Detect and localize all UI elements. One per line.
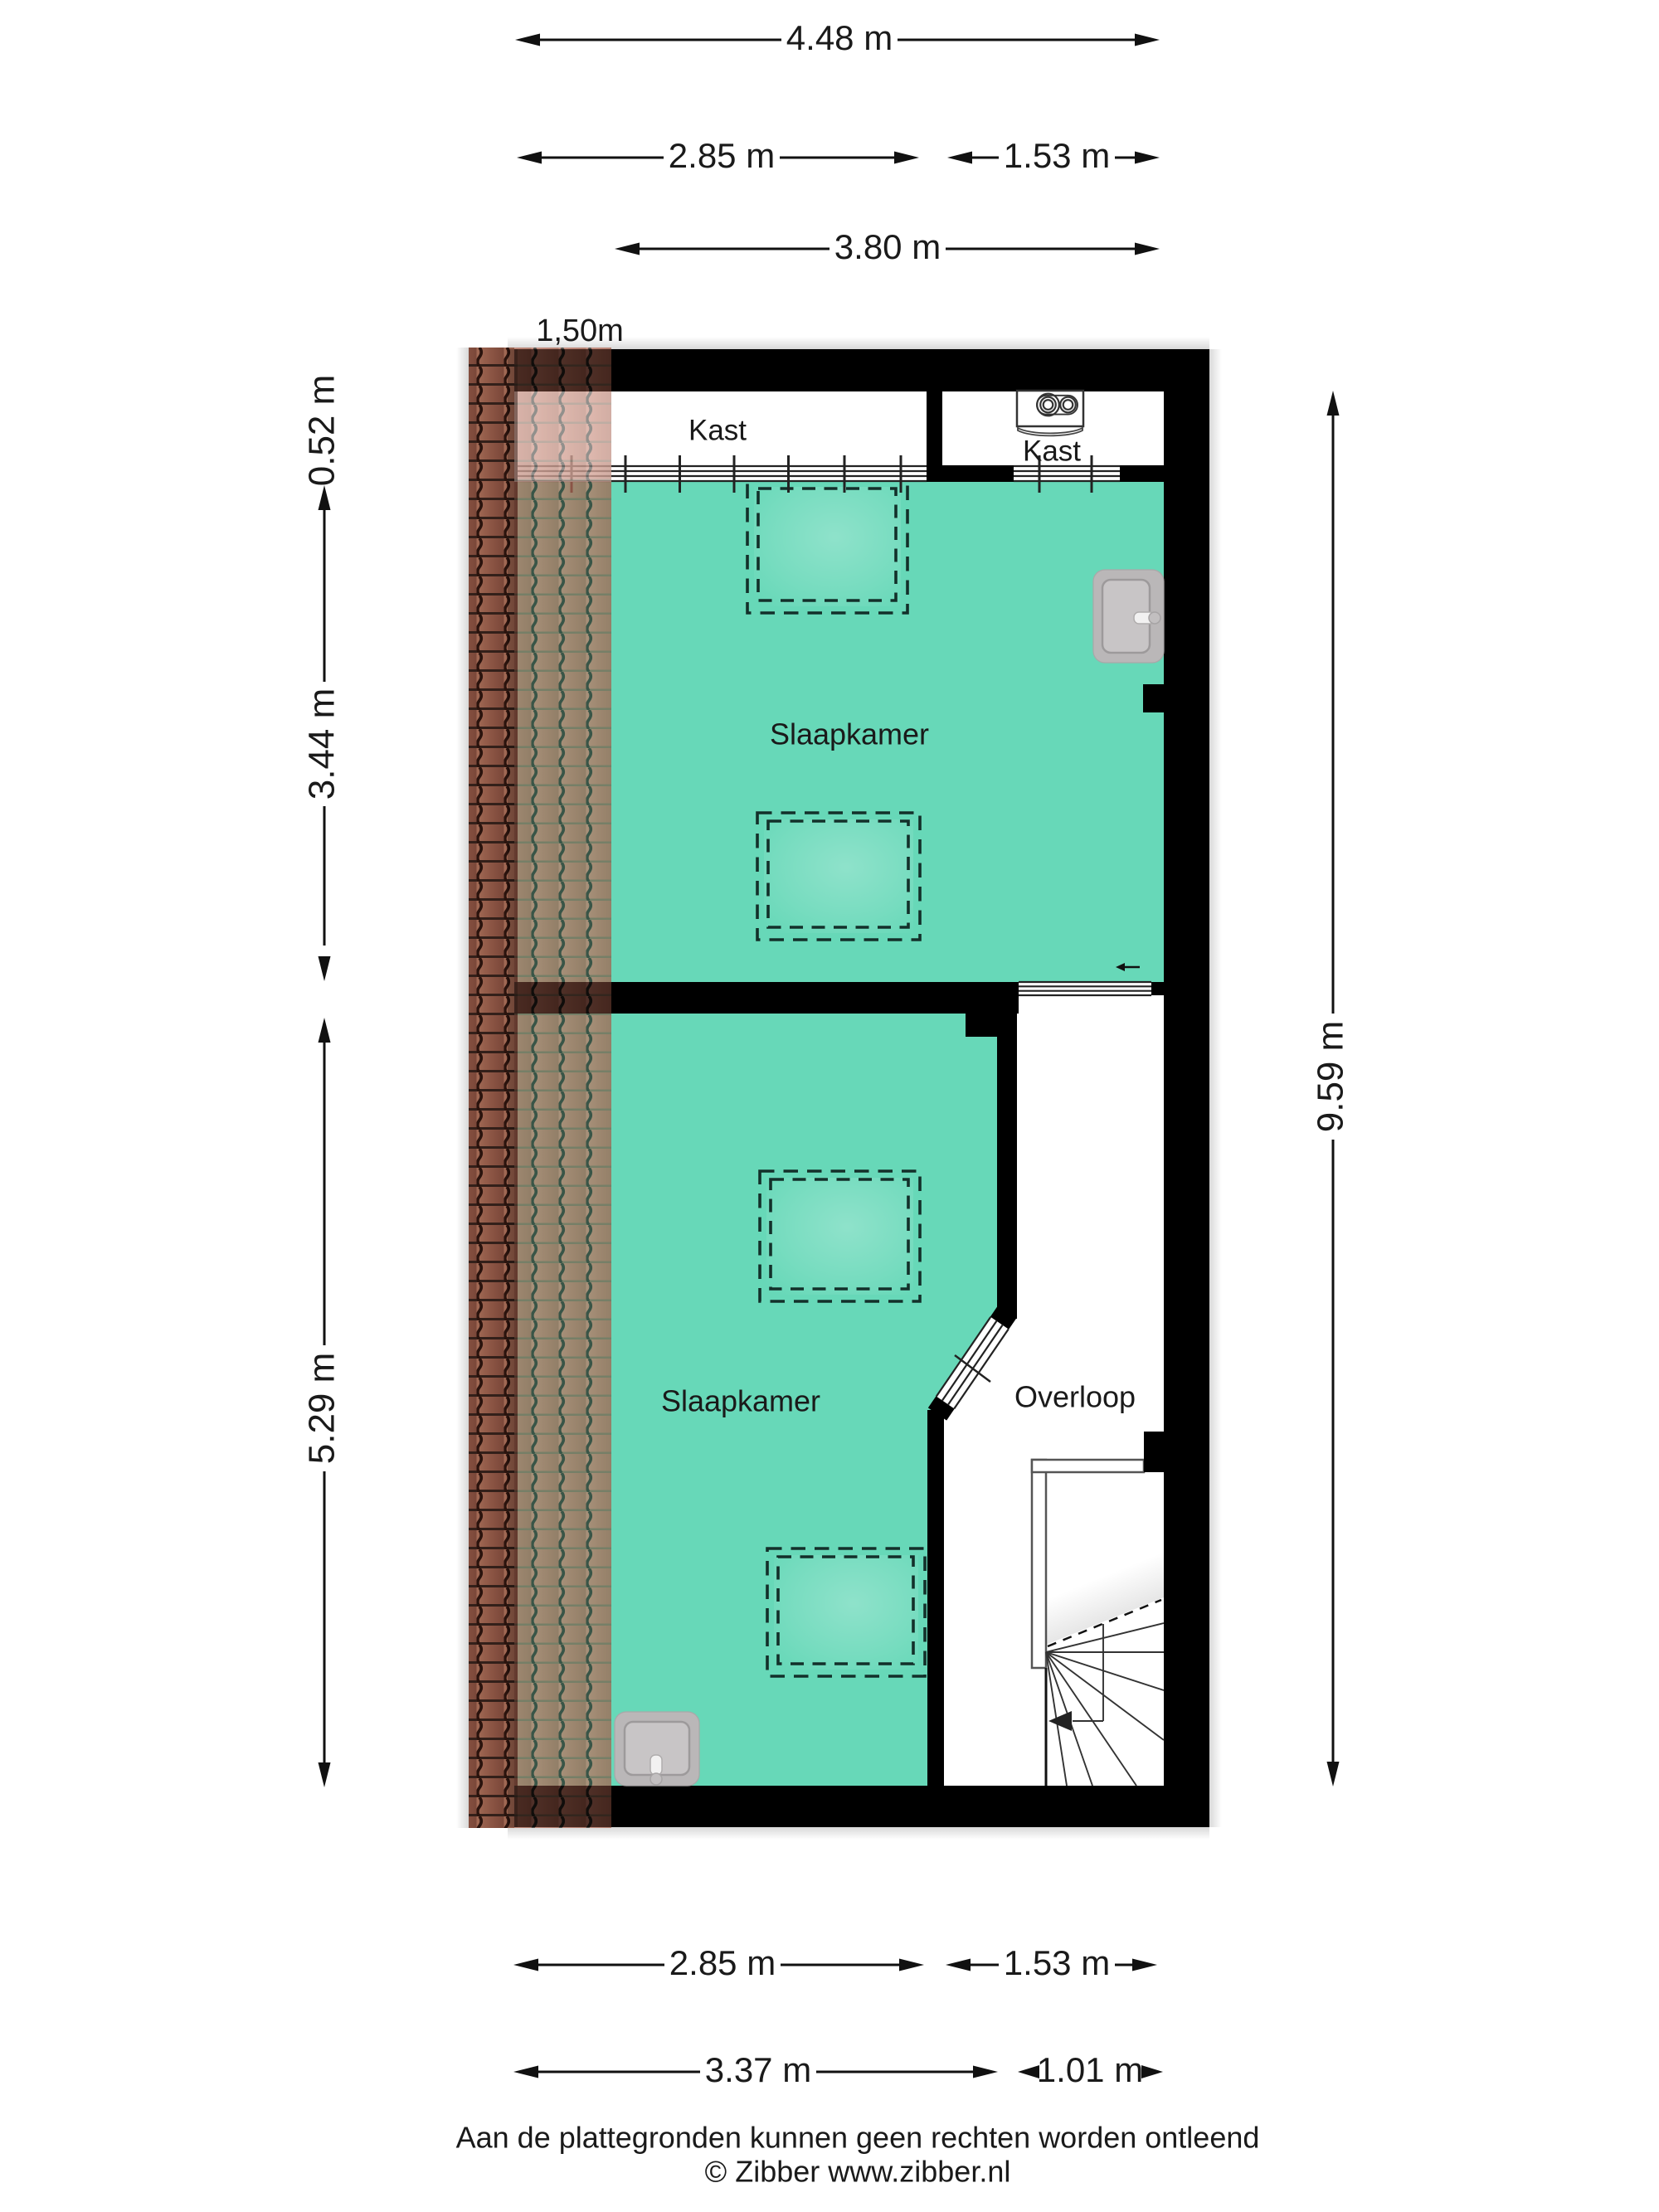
svg-text:Slaapkamer: Slaapkamer xyxy=(770,717,929,751)
svg-text:5.29 m: 5.29 m xyxy=(302,1353,343,1465)
svg-text:3.80 m: 3.80 m xyxy=(834,227,941,266)
svg-text:Slaapkamer: Slaapkamer xyxy=(661,1384,820,1418)
svg-text:0.52 m: 0.52 m xyxy=(302,375,343,487)
svg-text:1.53 m: 1.53 m xyxy=(1004,136,1110,175)
svg-text:3.44 m: 3.44 m xyxy=(302,688,343,800)
svg-text:2.85 m: 2.85 m xyxy=(669,136,775,175)
svg-text:1.01 m: 1.01 m xyxy=(1037,2050,1143,2089)
svg-text:3.37 m: 3.37 m xyxy=(705,2050,811,2089)
svg-text:Overloop: Overloop xyxy=(1014,1380,1136,1414)
svg-text:9.59 m: 9.59 m xyxy=(1311,1021,1351,1133)
svg-text:Kast: Kast xyxy=(1023,435,1081,467)
svg-text:4.48 m: 4.48 m xyxy=(786,18,893,57)
svg-text:Kast: Kast xyxy=(688,414,747,446)
svg-text:1.53 m: 1.53 m xyxy=(1004,1943,1110,1982)
svg-text:© Zibber www.zibber.nl: © Zibber www.zibber.nl xyxy=(705,2155,1011,2189)
svg-text:2.85 m: 2.85 m xyxy=(669,1943,776,1982)
svg-text:Aan de plattegronden kunnen ge: Aan de plattegronden kunnen geen rechten… xyxy=(456,2121,1260,2155)
